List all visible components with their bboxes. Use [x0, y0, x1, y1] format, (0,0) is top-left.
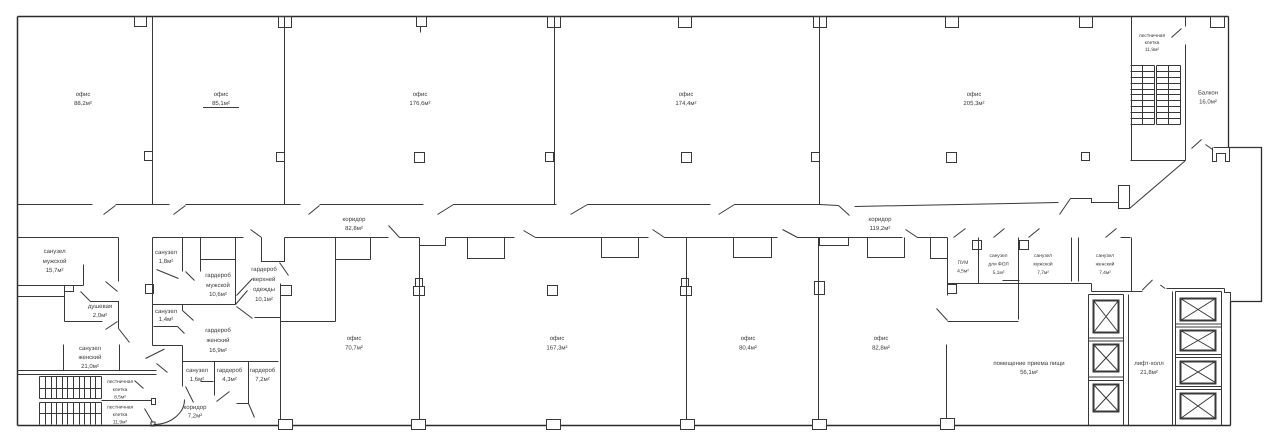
svg-text:санузел: санузел: [79, 346, 101, 352]
svg-text:56,1м²: 56,1м²: [1020, 369, 1038, 376]
svg-text:11,9м²: 11,9м²: [113, 420, 128, 426]
svg-text:мужской: мужской: [206, 282, 230, 289]
svg-text:174,4м²: 174,4м²: [675, 100, 696, 107]
svg-text:коридор: коридор: [343, 217, 367, 223]
svg-text:коридор: коридор: [869, 217, 893, 223]
svg-text:лифт-холл: лифт-холл: [1134, 360, 1164, 367]
svg-text:офис: офис: [967, 91, 982, 98]
svg-text:2,0м²: 2,0м²: [93, 312, 107, 319]
svg-text:мужской: мужской: [1033, 262, 1053, 268]
svg-text:коридор: коридор: [184, 405, 208, 411]
svg-text:7,2м²: 7,2м²: [188, 413, 202, 420]
svg-text:21,0м²: 21,0м²: [81, 363, 99, 370]
svg-text:176,6м²: 176,6м²: [409, 100, 430, 107]
svg-text:1,4м²: 1,4м²: [159, 316, 173, 323]
svg-text:16,0м²: 16,0м²: [1199, 99, 1217, 106]
svg-text:11,9м²: 11,9м²: [1145, 47, 1160, 53]
svg-text:санузел: санузел: [155, 250, 177, 256]
svg-text:санузел: санузел: [990, 254, 1008, 259]
svg-text:одежды: одежды: [253, 287, 275, 293]
svg-text:7,7м²: 7,7м²: [1037, 270, 1049, 276]
svg-text:офис: офис: [874, 335, 889, 342]
svg-text:гардероб: гардероб: [205, 327, 231, 334]
svg-text:1,8м²: 1,8м²: [159, 258, 173, 265]
svg-text:санузел: санузел: [1034, 254, 1052, 259]
svg-text:119,2м²: 119,2м²: [870, 225, 891, 232]
svg-text:офис: офис: [76, 91, 91, 98]
svg-text:1,6м²: 1,6м²: [190, 376, 204, 383]
svg-text:офис: офис: [741, 335, 756, 342]
svg-text:82,8м²: 82,8м²: [345, 225, 363, 232]
svg-text:85,1м²: 85,1м²: [212, 100, 230, 107]
svg-text:5,1м²: 5,1м²: [993, 270, 1005, 276]
svg-text:ПУМ: ПУМ: [958, 260, 969, 266]
svg-text:80,4м²: 80,4м²: [739, 345, 757, 352]
svg-text:санузел: санузел: [1096, 254, 1114, 259]
svg-text:женский: женский: [79, 354, 102, 361]
svg-text:клетка: клетка: [1145, 41, 1160, 46]
svg-text:10,1м²: 10,1м²: [255, 296, 273, 303]
svg-text:15,7м²: 15,7м²: [46, 267, 64, 274]
svg-text:лестничная: лестничная: [107, 406, 134, 411]
svg-text:верхней: верхней: [253, 276, 276, 283]
svg-text:душевая: душевая: [88, 304, 112, 310]
svg-text:82,8м²: 82,8м²: [872, 345, 890, 352]
svg-text:7,2м²: 7,2м²: [255, 376, 269, 383]
svg-text:санузел: санузел: [44, 249, 66, 255]
svg-text:10,6м²: 10,6м²: [209, 291, 227, 298]
svg-text:лестничная: лестничная: [107, 380, 134, 385]
svg-text:офис: офис: [550, 335, 565, 342]
svg-text:мужской: мужской: [43, 258, 67, 265]
svg-text:16,9м²: 16,9м²: [209, 347, 227, 354]
svg-text:для ФОЛ: для ФОЛ: [988, 262, 1008, 268]
svg-text:офис: офис: [347, 335, 362, 342]
svg-text:Балкон: Балкон: [1198, 90, 1218, 97]
svg-text:88,2м²: 88,2м²: [74, 100, 92, 107]
svg-text:женский: женский: [1096, 262, 1115, 268]
svg-text:женский: женский: [207, 337, 230, 344]
svg-text:офис: офис: [413, 91, 428, 98]
svg-text:4,3м²: 4,3м²: [222, 376, 236, 383]
svg-text:санузел: санузел: [186, 368, 208, 374]
svg-text:клетка: клетка: [113, 388, 128, 393]
svg-text:21,8м²: 21,8м²: [1140, 369, 1158, 376]
svg-text:лестничная: лестничная: [1139, 34, 1166, 39]
svg-text:167,3м²: 167,3м²: [546, 345, 567, 352]
svg-text:гардероб: гардероб: [250, 367, 276, 374]
svg-text:4,5м²: 4,5м²: [957, 269, 969, 275]
svg-text:гардероб: гардероб: [251, 266, 277, 273]
svg-text:7,4м²: 7,4м²: [1099, 270, 1111, 276]
svg-text:офис: офис: [679, 91, 694, 98]
svg-text:гардероб: гардероб: [205, 272, 231, 279]
svg-text:70,7м²: 70,7м²: [345, 345, 363, 352]
svg-text:санузел: санузел: [155, 309, 177, 315]
svg-text:помещение приема пищи: помещение приема пищи: [993, 361, 1064, 367]
svg-text:гардероб: гардероб: [217, 367, 243, 374]
svg-text:офис: офис: [214, 91, 229, 98]
svg-text:клетка: клетка: [113, 413, 128, 418]
svg-text:8,5м²: 8,5м²: [114, 395, 126, 401]
svg-text:205,3м²: 205,3м²: [963, 100, 984, 107]
